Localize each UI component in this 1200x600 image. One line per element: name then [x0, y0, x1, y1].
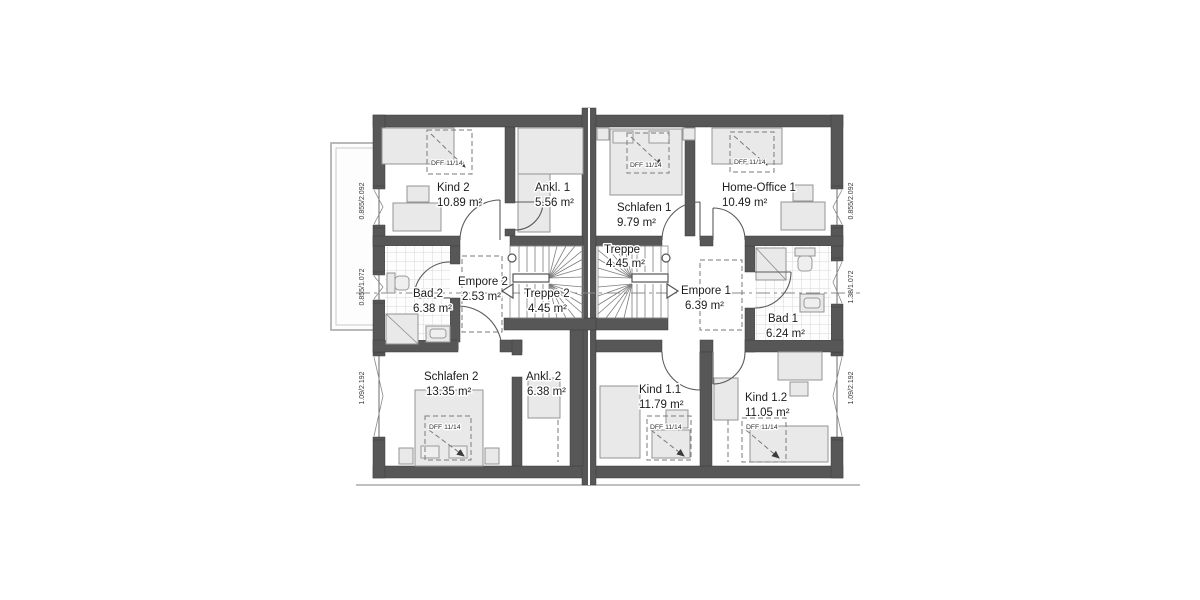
closet — [528, 378, 560, 418]
nightstand — [485, 448, 499, 464]
room-label-bad-1: Bad 1 — [768, 313, 798, 325]
room-area-home-office-1: 10.49 m² — [722, 197, 768, 209]
stair-handrail — [632, 274, 668, 282]
pillow — [421, 446, 439, 458]
room-area-kind-2: 10.89 m² — [437, 197, 483, 209]
window-left-middle — [372, 272, 386, 303]
bed — [600, 386, 640, 458]
skylight-label: DFF 11/14 — [429, 424, 461, 431]
skylight-label: DFF 11/14 — [431, 160, 463, 167]
stair-post — [662, 254, 670, 262]
room-area-kind-1-1: 11.79 m² — [639, 399, 684, 411]
room-kind-1-1-furniture — [600, 386, 690, 458]
window-right-top — [830, 186, 844, 228]
window-dimension-label: 0.855/2.092 — [359, 182, 366, 219]
window-left-top — [372, 186, 386, 228]
skylight-label: DFF 11/14 — [746, 424, 778, 431]
window-dimension-label: 1.09/2.192 — [848, 371, 855, 404]
door-schlafen-2 — [458, 306, 502, 350]
room-area-ankl-1: 5.56 m² — [535, 197, 574, 209]
bed — [750, 426, 828, 462]
staircase-right — [598, 246, 678, 318]
desk — [393, 203, 441, 231]
skylight-label: DFF 11/14 — [650, 424, 682, 431]
skylight-label: DFF 11/14 — [734, 159, 766, 166]
room-label-treppe: Treppe — [604, 244, 640, 256]
chair — [407, 186, 429, 202]
room-label-schlafen-1: Schlafen 1 — [617, 202, 671, 214]
room-kind-2-furniture — [382, 128, 454, 231]
room-labels: Kind 2 10.89 m² Ankl. 1 5.56 m² Schlafen… — [413, 182, 805, 419]
balcony — [331, 143, 378, 330]
chair — [793, 185, 813, 201]
room-area-treppe-2: 4.45 m² — [528, 303, 567, 315]
window-dimension-label: 0.855/2.092 — [848, 182, 855, 219]
room-label-ankl-2: Ankl. 2 — [526, 371, 561, 383]
toilet-bowl — [395, 276, 409, 290]
wardrobe — [714, 378, 738, 420]
room-label-bad-2: Bad 2 — [413, 288, 443, 300]
room-label-kind-2: Kind 2 — [437, 182, 470, 194]
window-right-bottom — [830, 353, 844, 440]
room-ankl-1-furniture — [518, 128, 583, 232]
party-wall — [582, 108, 596, 485]
room-area-schlafen-2: 13.35 m² — [426, 386, 472, 398]
room-area-ankl-2: 6.38 m² — [527, 386, 566, 398]
room-label-home-office-1: Home-Office 1 — [722, 182, 796, 194]
nightstand — [597, 128, 609, 140]
closet — [518, 128, 583, 174]
toilet-tank — [795, 248, 815, 256]
room-area-treppe: 4.45 m² — [606, 258, 645, 270]
window-left-bottom — [372, 353, 386, 440]
stair-direction-arrow — [667, 284, 678, 298]
stair-post — [508, 254, 516, 262]
window-dimension-label: 0.855/1.072 — [359, 268, 366, 305]
room-home-office-1-furniture — [712, 128, 825, 230]
room-label-ankl-1: Ankl. 1 — [535, 182, 570, 194]
room-area-kind-1-2: 11.05 m² — [745, 407, 790, 419]
room-label-schlafen-2: Schlafen 2 — [424, 371, 478, 383]
room-area-empore-1: 6.39 m² — [685, 300, 724, 312]
room-label-empore-2: Empore 2 — [458, 276, 508, 288]
room-area-bad-2: 6.38 m² — [413, 303, 452, 315]
chair — [790, 382, 808, 396]
room-label-empore-1: Empore 1 — [681, 285, 731, 297]
floor-plan-svg: Kind 2 10.89 m² Ankl. 1 5.56 m² Schlafen… — [0, 0, 1200, 600]
room-area-schlafen-1: 9.79 m² — [617, 217, 656, 229]
toilet-tank — [387, 273, 395, 293]
stair-handrail — [513, 274, 549, 282]
room-area-bad-1: 6.24 m² — [766, 328, 805, 340]
room-area-empore-2: 2.53 m² — [462, 291, 501, 303]
desk — [781, 202, 825, 230]
nightstand — [683, 128, 695, 140]
desk — [778, 352, 822, 380]
room-label-kind-1-1: Kind 1.1 — [639, 384, 681, 396]
window-dimension-label: 1.09/2.192 — [359, 371, 366, 404]
room-label-treppe-2: Treppe 2 — [524, 288, 570, 300]
window-right-middle — [830, 258, 844, 307]
window-dimension-label: 1.38/1.072 — [848, 270, 855, 303]
toilet-bowl — [798, 256, 812, 271]
nightstand — [399, 448, 413, 464]
desk — [652, 430, 690, 458]
door-home-office-1 — [713, 208, 745, 240]
skylight-label: DFF 11/14 — [630, 162, 662, 169]
room-label-kind-1-2: Kind 1.2 — [745, 392, 787, 404]
floor-plan-page: Kind 2 10.89 m² Ankl. 1 5.56 m² Schlafen… — [0, 0, 1200, 600]
